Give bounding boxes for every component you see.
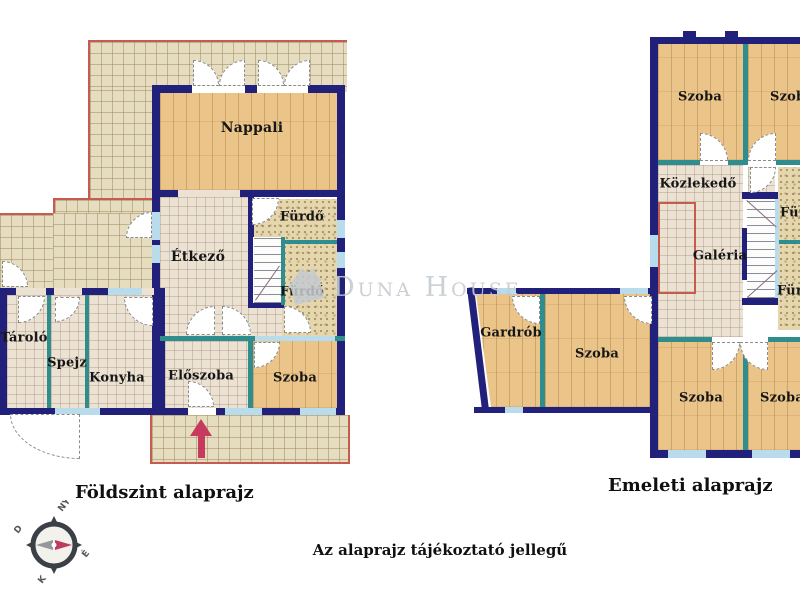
room-label: Szoba <box>575 347 619 362</box>
room-label: Fürdő <box>780 206 800 221</box>
window <box>505 407 523 413</box>
exterior-door-arc <box>10 414 80 459</box>
wall <box>742 192 778 199</box>
entry-arrow-icon <box>190 419 212 436</box>
compass-icon: NY D K É <box>14 500 94 588</box>
window <box>650 235 658 267</box>
room-label: Szoba <box>678 90 722 105</box>
wall <box>152 85 345 93</box>
room-nappali <box>160 92 337 190</box>
room-label: Gardrób <box>480 326 541 341</box>
landing <box>248 305 282 336</box>
passage-opening <box>178 190 240 197</box>
window <box>300 408 336 415</box>
wall <box>474 407 655 413</box>
partition <box>743 44 748 160</box>
window <box>225 408 262 415</box>
window <box>752 450 790 458</box>
partition <box>778 240 800 244</box>
terrace-left <box>88 90 154 213</box>
wall <box>337 85 345 415</box>
compass-east-label: K <box>36 573 49 585</box>
galeria-void-outline <box>658 202 696 294</box>
glazed-partition <box>255 336 335 341</box>
partition <box>658 160 800 165</box>
room-label: Galéria <box>693 249 747 264</box>
wall-stub <box>683 31 696 37</box>
front-door-opening <box>188 408 216 415</box>
room-label: Szoba <box>273 371 317 386</box>
room-label: Fürdő <box>777 284 800 299</box>
window <box>152 245 160 263</box>
door-opening <box>54 288 82 295</box>
window <box>668 450 706 458</box>
room-furdo-up-top <box>778 167 800 240</box>
room-label: Közlekedő <box>659 177 736 192</box>
wall-stub <box>725 31 738 37</box>
watermark-text: Duna House <box>333 272 522 303</box>
window <box>152 212 160 240</box>
partition <box>248 341 253 408</box>
entry-arrow-stem <box>198 435 205 458</box>
room-label: Konyha <box>89 371 145 386</box>
door-opening <box>257 85 308 93</box>
room-label: Szoba <box>770 90 800 105</box>
ground-caption: Földszint alaprajz <box>75 482 254 503</box>
room-label: Nappali <box>221 120 284 136</box>
window <box>337 220 345 238</box>
partition <box>85 295 89 408</box>
wall <box>248 303 284 308</box>
floorplan-sheet: Nappali Fürdő Étkező Fürdő Tároló Spejz … <box>0 0 800 600</box>
watermark: Duna House <box>283 264 522 310</box>
room-label: Szoba <box>679 391 723 406</box>
wall <box>650 37 800 44</box>
room-label: Szoba <box>760 391 800 406</box>
room-label: Előszoba <box>168 369 234 384</box>
wall <box>155 288 165 415</box>
wall <box>742 298 778 305</box>
disclaimer-text: Az alaprajz tájékoztató jellegű <box>313 541 567 559</box>
room-label: Tároló <box>0 331 47 346</box>
window <box>620 288 648 294</box>
room-label: Fürdő <box>280 210 324 225</box>
room-label: Spejz <box>47 356 87 371</box>
partition <box>285 240 337 244</box>
house-icon <box>278 259 334 315</box>
partition <box>47 295 51 408</box>
partition <box>540 294 545 407</box>
wall <box>0 288 7 415</box>
door-opening <box>16 288 46 295</box>
entry-porch <box>150 415 350 464</box>
compass-west-label: NY <box>56 500 73 514</box>
window <box>108 288 142 295</box>
compass-north-label: É <box>79 548 92 560</box>
door-opening <box>192 85 245 93</box>
room-label: Étkező <box>171 249 225 265</box>
compass-south-label: D <box>14 524 25 536</box>
wall <box>248 237 253 305</box>
upper-caption: Emeleti alaprajz <box>608 475 773 496</box>
